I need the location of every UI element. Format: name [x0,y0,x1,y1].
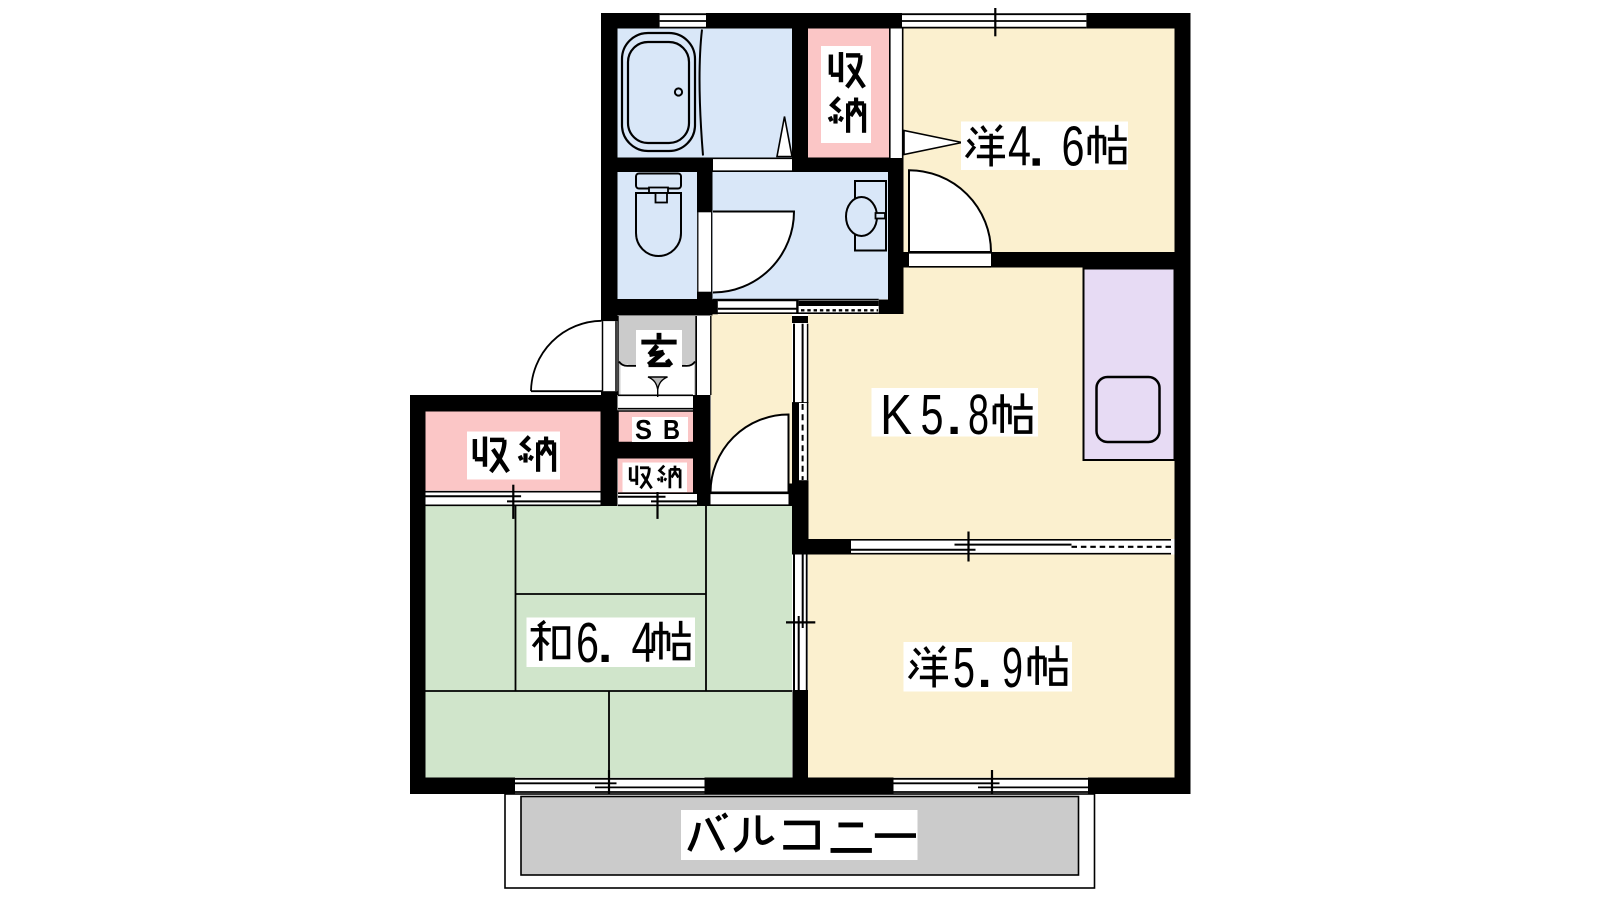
svg-text:4: 4 [1008,115,1031,179]
svg-text:6: 6 [1062,115,1085,179]
svg-text:5: 5 [953,636,975,700]
svg-text:S: S [635,414,652,445]
svg-text:B: B [663,414,680,445]
svg-text:5: 5 [921,383,944,447]
svg-text:4: 4 [632,611,655,675]
svg-text:8: 8 [968,383,989,447]
svg-text:9: 9 [1002,636,1023,700]
svg-text:6: 6 [576,611,599,675]
svg-text:K: K [880,383,912,447]
